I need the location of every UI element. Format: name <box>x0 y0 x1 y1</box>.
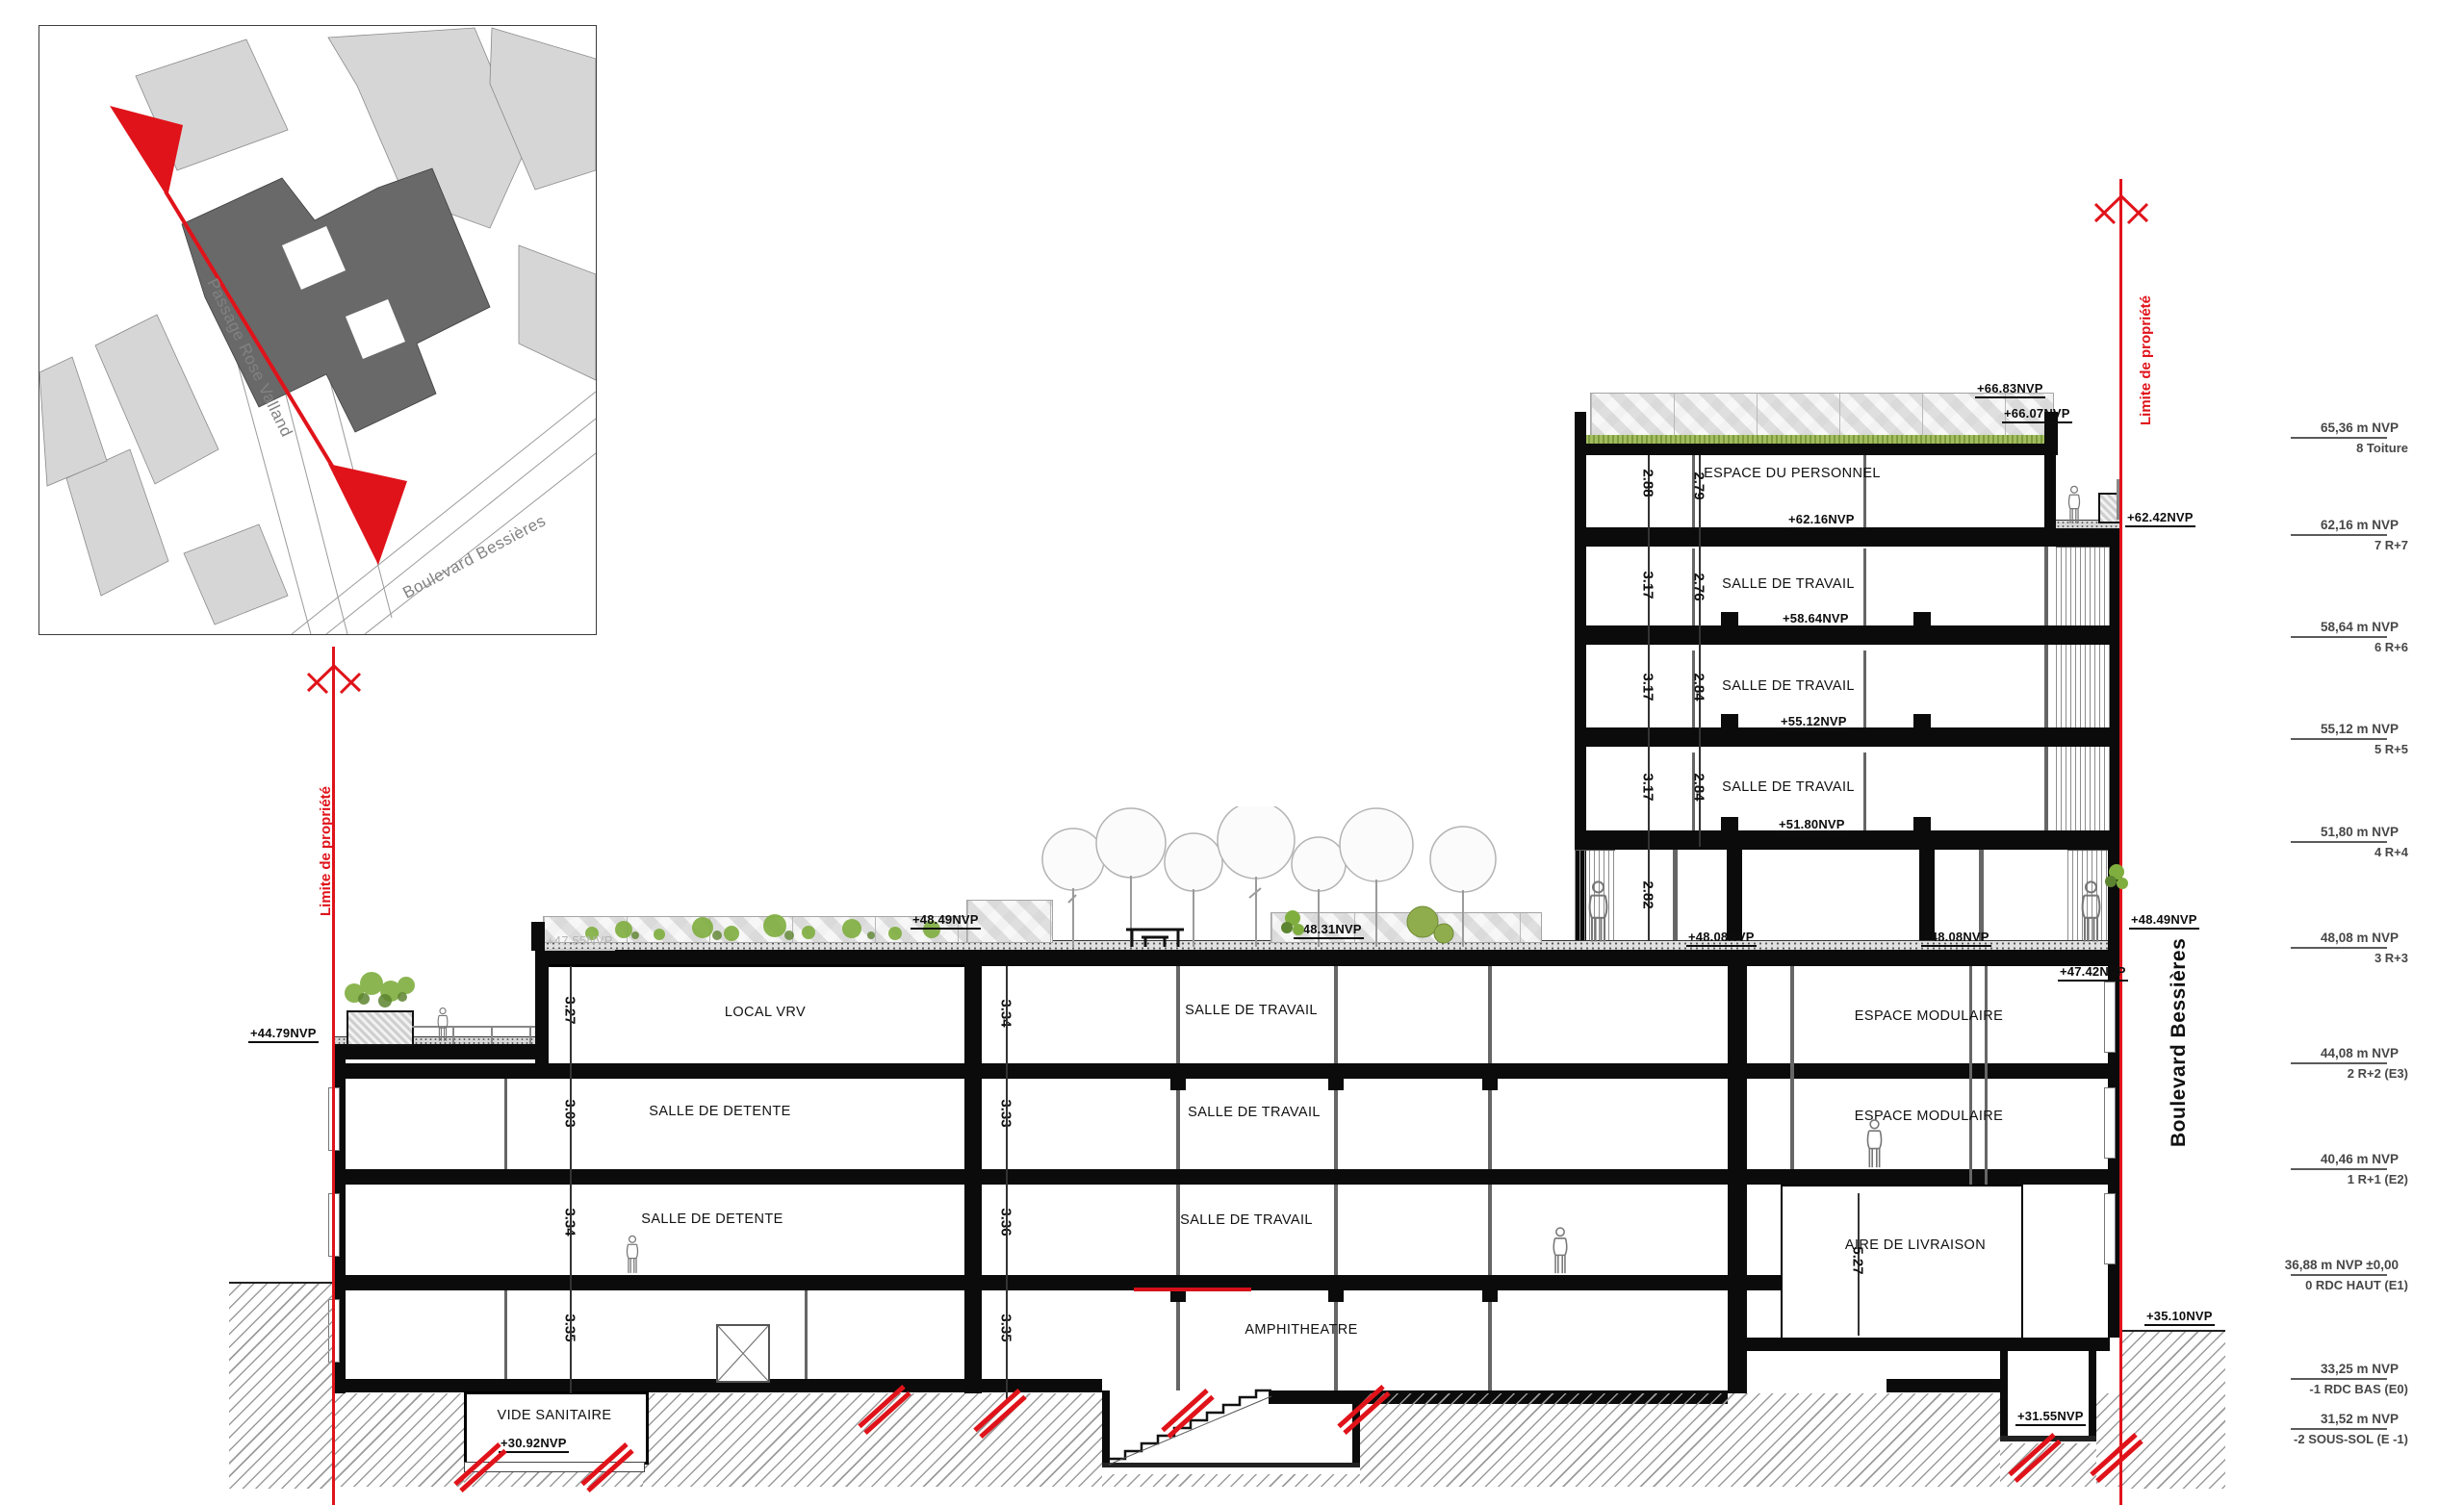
elevation-scale-floor: 6 R+6 <box>2200 640 2408 654</box>
elevation-scale-floor: -1 RDC BAS (E0) <box>2200 1382 2408 1396</box>
room-label: SALLE DE DETENTE <box>649 1104 790 1119</box>
section-drawing: Passage Rose Valland Boulevard Bessières <box>0 0 2464 1505</box>
person-silhouette <box>435 1007 450 1043</box>
elevation-scale-floor: -2 SOUS-SOL (E -1) <box>2200 1432 2408 1446</box>
partition <box>805 1290 808 1379</box>
elevation-scale-value: 31,52 m NVP <box>2200 1412 2399 1426</box>
elevation-scale-floor: 4 R+4 <box>2200 845 2408 859</box>
column <box>1334 1185 1338 1275</box>
ground-hatch <box>1360 1393 2000 1487</box>
room-label: AMPHITHEATRE <box>1245 1322 1357 1338</box>
tower-column-cap <box>1721 612 1738 625</box>
tower-mullion <box>1863 752 1866 830</box>
left-terrace-slab <box>332 1044 538 1059</box>
level-marker: +47.42NVP <box>2058 964 2128 982</box>
r3-column <box>1673 850 1678 948</box>
room-label: SALLE DE TRAVAIL <box>1185 1003 1318 1018</box>
column <box>1488 1079 1492 1169</box>
slab-r2 <box>332 1063 2121 1079</box>
dimension-label: 2.84 <box>1691 773 1707 801</box>
dimension-line <box>570 966 572 1393</box>
person-silhouette <box>1550 1226 1571 1276</box>
dimension-label: 2.76 <box>1691 573 1707 600</box>
door <box>716 1324 770 1383</box>
elevation-scale-value: 44,08 m NVP <box>2200 1046 2399 1060</box>
vrv-wall-left <box>535 951 549 1063</box>
slab-r1 <box>332 1169 2121 1185</box>
level-marker: +48.08NVP <box>1921 930 1991 947</box>
room-label: SALLE DE TRAVAIL <box>1722 779 1855 795</box>
elevation-scale-line <box>2291 947 2387 949</box>
elevation-scale-line <box>2291 1378 2387 1380</box>
tower-column-cap <box>1913 817 1931 830</box>
room-label: SALLE DE DETENTE <box>641 1212 783 1227</box>
dimension-label: 3.17 <box>1640 571 1656 599</box>
column <box>1334 966 1338 1063</box>
roof-shrubs <box>577 910 962 943</box>
property-line-right <box>2119 179 2122 1505</box>
partition <box>504 1290 507 1379</box>
plant <box>1280 908 1305 941</box>
property-line-left <box>332 647 335 1505</box>
elevation-scale-line <box>2291 636 2387 638</box>
person-silhouette <box>2066 485 2083 525</box>
plant <box>2104 862 2129 895</box>
property-line-label: Limite de propriété <box>2138 295 2154 425</box>
elevation-scale-value: 51,80 m NVP <box>2200 825 2399 839</box>
right-lower-slab <box>1886 1379 2000 1392</box>
right-window <box>2104 1087 2116 1159</box>
elevation-scale-value: 33,25 m NVP <box>2200 1362 2399 1376</box>
column <box>1176 1079 1180 1169</box>
level-marker: +35.10NVP <box>2144 1309 2215 1326</box>
elevation-scale-value: 36,88 m NVP ±0,00 <box>2200 1258 2399 1272</box>
elevation-scale-floor: 7 R+7 <box>2200 538 2408 552</box>
left-terrace-railing <box>412 1026 535 1028</box>
tower-column-cap <box>1913 714 1931 727</box>
room-label: SALLE DE TRAVAIL <box>1180 1212 1313 1228</box>
elevation-scale-value: 40,46 m NVP <box>2200 1152 2399 1166</box>
elevation-scale-line <box>2291 534 2387 536</box>
room-label: SALLE DE TRAVAIL <box>1188 1105 1321 1120</box>
room-label: AIRE DE LIVRAISON <box>1845 1237 1986 1253</box>
column <box>1488 1185 1492 1275</box>
property-line-label: Limite de propriété <box>318 786 334 916</box>
ground-hatch <box>332 1393 464 1487</box>
delivery-floor-slab <box>1747 1338 2110 1351</box>
level-marker: +48.49NVP <box>911 912 981 930</box>
tower-column-cap <box>1913 612 1931 625</box>
cut-symbol-right <box>2093 192 2149 225</box>
amphi-wall <box>1352 1390 1360 1467</box>
elevation-scale-line <box>2291 1274 2387 1276</box>
left-terrace-planter <box>346 1010 414 1046</box>
tower-roof-slab <box>1575 444 2058 455</box>
elevation-scale-floor: 1 R+1 (E2) <box>2200 1172 2408 1186</box>
level-marker: +48.08NVP <box>1686 930 1757 947</box>
vrv-ceiling-line <box>549 964 964 967</box>
delivery-area-outline <box>1781 1185 2023 1341</box>
planter-plants <box>339 966 420 1012</box>
right-window <box>2104 1193 2116 1264</box>
street-ground-hatch <box>2121 1330 2225 1489</box>
level-marker: +62.16NVP <box>1786 512 1857 529</box>
tower-slab-r7 <box>1575 527 2121 547</box>
room-label: SALLE DE TRAVAIL <box>1722 678 1855 694</box>
tower-green-roof <box>1583 435 2057 444</box>
pit-wall <box>2000 1345 2008 1441</box>
dimension-line <box>1006 966 1008 1404</box>
elevation-scale-value: 48,08 m NVP <box>2200 931 2399 945</box>
dimension-label: 2.79 <box>1691 472 1707 499</box>
tower-column-cap <box>1721 817 1738 830</box>
elevation-scale-floor: 8 Toiture <box>2200 441 2408 455</box>
elevation-scale-line <box>2291 437 2387 439</box>
elevation-scale-value: 62,16 m NVP <box>2200 518 2399 532</box>
level-marker: +30.92NVP <box>499 1436 569 1453</box>
column-cap <box>1328 1079 1344 1090</box>
level-marker: +58.64NVP <box>1781 611 1851 628</box>
amphi-red-beam <box>1134 1288 1251 1291</box>
level-marker: +51.80NVP <box>1777 817 1847 834</box>
cut-symbol-left <box>306 662 362 695</box>
column-cap <box>1482 1290 1498 1302</box>
elevation-scale-line <box>2291 738 2387 740</box>
core-wall <box>1728 966 1747 1393</box>
column <box>1176 966 1180 1063</box>
dimension-label: 5.27 <box>1850 1246 1866 1274</box>
tower-wall-right-inner <box>2044 547 2048 842</box>
level-marker: +48.49NVP <box>2129 912 2199 930</box>
amphi-steps <box>1107 1382 1272 1465</box>
elevation-scale-floor: 2 R+2 (E3) <box>2200 1066 2408 1081</box>
column <box>1334 1079 1338 1169</box>
ground-hatch <box>464 1470 643 1487</box>
person-silhouette <box>2077 880 2105 945</box>
level-marker: +31.55NVP <box>2015 1409 2086 1426</box>
elevation-scale-floor: 0 RDC HAUT (E1) <box>2200 1278 2408 1292</box>
level-marker: +62.42NVP <box>2125 510 2195 527</box>
room-label: SALLE DE TRAVAIL <box>1722 576 1855 592</box>
room-label: LOCAL VRV <box>725 1005 806 1020</box>
elevation-scale-value: 58,64 m NVP <box>2200 620 2399 634</box>
level-marker: +55.12NVP <box>1779 714 1849 731</box>
dimension-label: 2.88 <box>1640 469 1656 497</box>
elevation-scale-floor: 5 R+5 <box>2200 742 2408 756</box>
railing-post <box>491 1026 493 1044</box>
dimension-label: 2.84 <box>1691 673 1707 701</box>
tower-slab-r4 <box>1575 830 2121 850</box>
roof-trellis <box>1590 393 2054 437</box>
column-cap <box>1328 1290 1344 1302</box>
tower-mullion <box>1863 548 1866 625</box>
tower-facade-screen-right <box>2056 547 2110 843</box>
roof-step-wall <box>531 922 545 951</box>
dimension-label: 3.17 <box>1640 773 1656 801</box>
dimension-label: 3.17 <box>1640 673 1656 701</box>
elevation-scale-line <box>2291 1062 2387 1064</box>
terrace-bench <box>1124 918 1186 949</box>
site-plan-inset: Passage Rose Valland Boulevard Bessières <box>38 25 597 635</box>
column-cap <box>1170 1079 1186 1090</box>
room-label: VIDE SANITAIRE <box>498 1408 612 1423</box>
ground-hatch <box>643 1393 1102 1487</box>
column <box>1176 1185 1180 1275</box>
column <box>1488 1290 1492 1390</box>
elevation-scale-line <box>2291 1428 2387 1430</box>
level-marker: +47.55NVP <box>545 933 615 951</box>
person-silhouette <box>624 1234 641 1276</box>
railing-post <box>452 1026 454 1044</box>
level-marker: +44.79NVP <box>248 1026 319 1043</box>
column <box>1488 966 1492 1063</box>
pit-wall <box>2089 1345 2096 1441</box>
room-label: ESPACE DU PERSONNEL <box>1704 466 1881 481</box>
person-silhouette <box>1584 880 1612 945</box>
right-window <box>2104 982 2116 1053</box>
elevation-scale-value: 55,12 m NVP <box>2200 722 2399 736</box>
dimension-label: 2.82 <box>1640 880 1656 908</box>
ground-hatch-left <box>229 1282 332 1489</box>
partition <box>504 1079 507 1169</box>
level-marker: +66.07NVP <box>2002 406 2072 423</box>
elevation-scale-floor: 3 R+3 <box>2200 951 2408 965</box>
elevation-scale-value: 65,36 m NVP <box>2200 421 2399 435</box>
ground-hatch <box>1102 1474 1360 1487</box>
column <box>1334 1290 1338 1390</box>
slab-rdc-haut <box>332 1275 1795 1290</box>
tower-slab-r6 <box>1575 625 2121 645</box>
room-label: ESPACE MODULAIRE <box>1855 1008 2003 1024</box>
level-marker: +66.83NVP <box>1975 381 2045 398</box>
elevation-scale-line <box>2291 1168 2387 1170</box>
column <box>1176 1290 1180 1390</box>
column-cap <box>1482 1079 1498 1090</box>
railing-post <box>529 1026 531 1044</box>
tower-column-cap <box>1721 714 1738 727</box>
elevation-scale-line <box>2291 841 2387 843</box>
tower-mullion <box>1863 650 1866 727</box>
column-cap <box>1170 1290 1186 1302</box>
partition <box>1790 966 1794 1169</box>
street-label-boulevard: Boulevard Bessières <box>2168 938 2191 1147</box>
person-silhouette <box>1863 1118 1886 1170</box>
